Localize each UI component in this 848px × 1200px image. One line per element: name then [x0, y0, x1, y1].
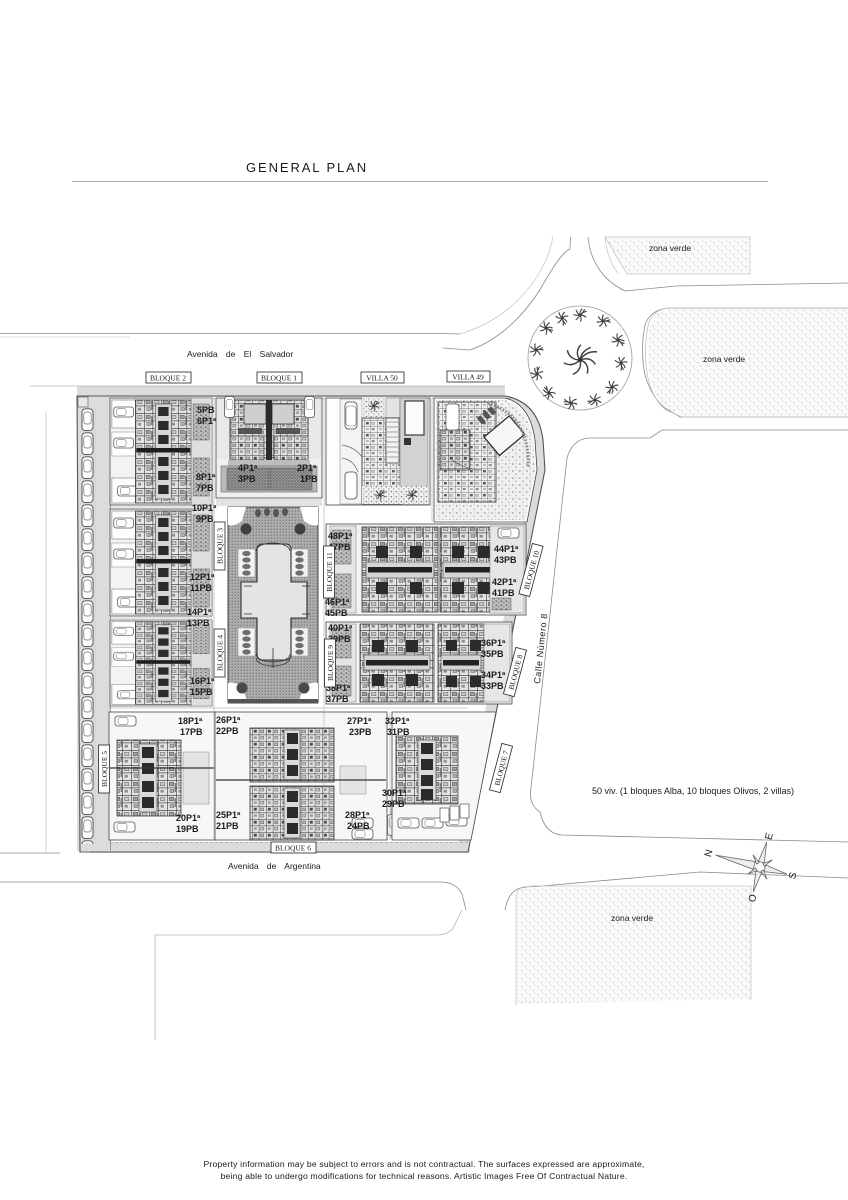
svg-text:being able to undergo modifica: being able to undergo modifications for … [221, 1171, 628, 1181]
svg-text:BLOQUE 9: BLOQUE 9 [326, 645, 335, 681]
svg-text:45PB: 45PB [325, 608, 348, 618]
svg-text:27P1ª: 27P1ª [347, 716, 372, 726]
svg-text:33PB: 33PB [481, 681, 504, 691]
svg-text:VILLA 50: VILLA 50 [366, 374, 398, 383]
svg-text:23PB: 23PB [349, 727, 372, 737]
svg-text:46P1ª: 46P1ª [325, 597, 350, 607]
svg-text:18P1ª: 18P1ª [178, 716, 203, 726]
svg-text:8P1ª: 8P1ª [196, 472, 216, 482]
svg-text:20P1ª: 20P1ª [176, 813, 201, 823]
svg-text:29PB: 29PB [382, 799, 405, 809]
svg-text:Avenida de Argentina: Avenida de Argentina [228, 861, 321, 871]
svg-text:Property information may be su: Property information may be subject to e… [203, 1159, 644, 1169]
svg-text:48P1ª: 48P1ª [328, 531, 353, 541]
svg-text:GENERAL PLAN: GENERAL PLAN [246, 160, 368, 175]
svg-text:44P1ª: 44P1ª [494, 544, 519, 554]
svg-text:28P1ª: 28P1ª [345, 810, 370, 820]
svg-text:11PB: 11PB [190, 583, 213, 593]
svg-text:35PB: 35PB [481, 649, 504, 659]
svg-text:6P1ª: 6P1ª [197, 416, 217, 426]
svg-text:BLOQUE 11: BLOQUE 11 [325, 552, 334, 592]
svg-text:7PB: 7PB [196, 483, 214, 493]
svg-text:15PB: 15PB [190, 687, 213, 697]
svg-text:34P1ª: 34P1ª [481, 670, 506, 680]
svg-text:16P1ª: 16P1ª [190, 676, 215, 686]
svg-text:9PB: 9PB [196, 514, 214, 524]
svg-text:25P1ª: 25P1ª [216, 810, 241, 820]
svg-text:3PB: 3PB [238, 474, 256, 484]
svg-text:BLOQUE 1: BLOQUE 1 [261, 374, 297, 383]
svg-text:BLOQUE 4: BLOQUE 4 [216, 635, 225, 671]
svg-text:Avenida de El Salvador: Avenida de El Salvador [187, 349, 293, 359]
svg-text:2P1ª: 2P1ª [297, 463, 317, 473]
svg-text:4P1ª: 4P1ª [238, 463, 258, 473]
svg-text:50 viv. (1 bloques Alba, 10 bl: 50 viv. (1 bloques Alba, 10 bloques Oliv… [592, 786, 794, 796]
svg-text:zona verde: zona verde [611, 913, 653, 923]
svg-text:14P1ª: 14P1ª [187, 607, 212, 617]
svg-text:31PB: 31PB [387, 727, 410, 737]
svg-text:5PB: 5PB [197, 405, 215, 415]
svg-text:26P1ª: 26P1ª [216, 715, 241, 725]
svg-text:zona verde: zona verde [703, 354, 745, 364]
svg-text:zona verde: zona verde [649, 243, 691, 253]
svg-text:19PB: 19PB [176, 824, 199, 834]
svg-text:21PB: 21PB [216, 821, 239, 831]
svg-text:17PB: 17PB [180, 727, 203, 737]
svg-text:36P1ª: 36P1ª [481, 638, 506, 648]
svg-text:12P1ª: 12P1ª [190, 572, 215, 582]
svg-text:42P1ª: 42P1ª [492, 577, 517, 587]
svg-text:1PB: 1PB [300, 474, 318, 484]
svg-text:BLOQUE 6: BLOQUE 6 [275, 844, 311, 853]
svg-text:24PB: 24PB [347, 821, 370, 831]
svg-text:41PB: 41PB [492, 588, 515, 598]
svg-text:40P1ª: 40P1ª [328, 623, 353, 633]
svg-text:43PB: 43PB [494, 555, 517, 565]
svg-text:10P1ª: 10P1ª [192, 503, 217, 513]
svg-text:BLOQUE 2: BLOQUE 2 [150, 374, 186, 383]
svg-text:22PB: 22PB [216, 726, 239, 736]
svg-text:13PB: 13PB [187, 618, 210, 628]
svg-text:37PB: 37PB [326, 694, 349, 704]
svg-text:BLOQUE 5: BLOQUE 5 [100, 751, 109, 787]
svg-text:BLOQUE 3: BLOQUE 3 [216, 528, 225, 564]
svg-text:32P1ª: 32P1ª [385, 716, 410, 726]
svg-text:VILLA 49: VILLA 49 [452, 373, 484, 382]
svg-text:30P1ª: 30P1ª [382, 788, 407, 798]
